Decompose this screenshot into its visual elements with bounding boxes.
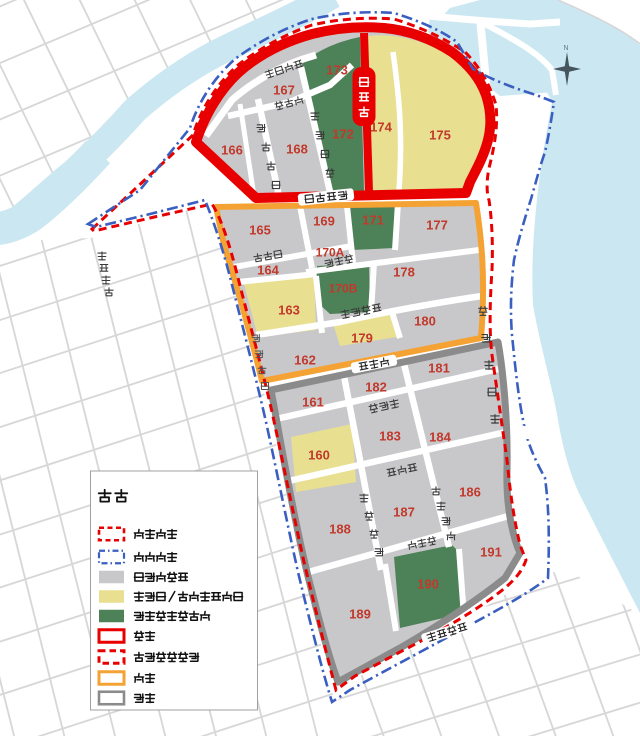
svg-text:189: 189 (349, 607, 371, 622)
svg-text:168: 168 (286, 142, 308, 157)
svg-text:179: 179 (351, 331, 373, 346)
svg-text:161: 161 (302, 395, 324, 410)
svg-text:169: 169 (313, 214, 335, 229)
svg-text:177: 177 (426, 218, 448, 233)
svg-text:164: 164 (257, 263, 279, 278)
svg-text:N: N (563, 45, 568, 52)
svg-text:165: 165 (249, 223, 271, 238)
svg-text:166: 166 (221, 143, 243, 158)
svg-text:180: 180 (414, 314, 436, 329)
svg-text:186: 186 (459, 485, 481, 500)
svg-text:167: 167 (273, 83, 295, 98)
svg-text:160: 160 (308, 448, 330, 463)
svg-text:175: 175 (429, 128, 451, 143)
svg-text:190: 190 (417, 577, 439, 592)
svg-text:184: 184 (429, 430, 451, 445)
svg-text:170B: 170B (329, 282, 358, 296)
svg-text:178: 178 (393, 265, 415, 280)
svg-text:172: 172 (332, 127, 354, 142)
svg-text:191: 191 (480, 545, 502, 560)
svg-text:163: 163 (278, 303, 300, 318)
svg-text:162: 162 (294, 353, 316, 368)
svg-text:182: 182 (365, 380, 387, 395)
svg-text:187: 187 (393, 505, 415, 520)
svg-text:183: 183 (379, 429, 401, 444)
svg-text:171: 171 (362, 213, 384, 228)
svg-text:188: 188 (329, 522, 351, 537)
svg-text:173: 173 (326, 63, 348, 78)
svg-text:181: 181 (428, 361, 450, 376)
